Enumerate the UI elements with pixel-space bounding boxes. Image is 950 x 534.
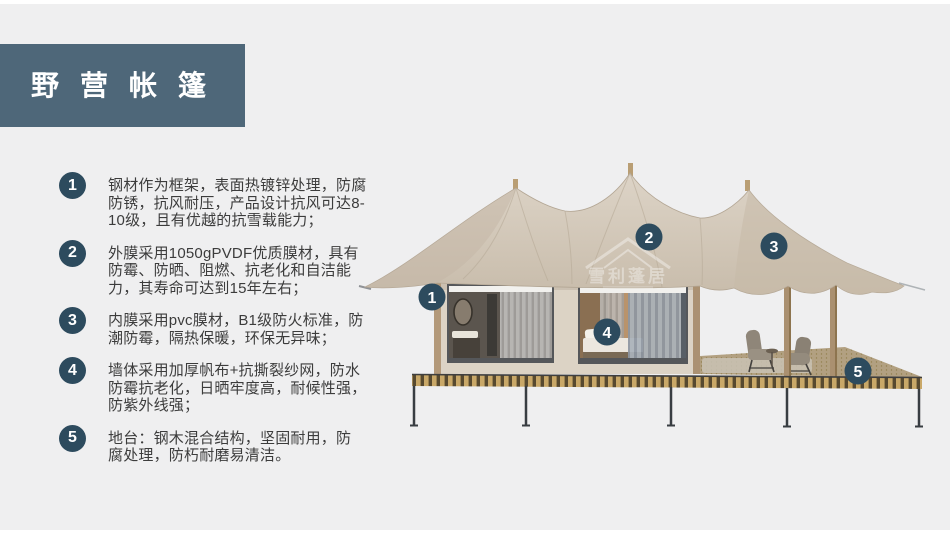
svg-text:1: 1 [428, 290, 437, 307]
deck-platform [410, 374, 923, 427]
svg-text:4: 4 [603, 325, 612, 342]
cabin-module [434, 283, 700, 374]
feature-text: 内膜采用pvc膜材，B1级防火标准，防 潮防霉，隔热保暖，环保无异味； [108, 312, 364, 347]
washbasin [452, 331, 478, 338]
window-valance [449, 286, 552, 292]
shower-column [487, 294, 497, 356]
feature-list: 1 钢材作为框架，表面热镀锌处理，防腐 防锈，抗风耐压，产品设计抗风可达8- 1… [59, 177, 404, 480]
window-bedroom [578, 285, 688, 364]
feature-text: 墙体采用加厚帆布+抗撕裂纱网，防水 防霉抗老化，日晒牢度高，耐候性强， 防紫外线… [108, 362, 366, 415]
feature-text: 外膜采用1050gPVDF优质膜材，具有 防霉、防晒、阻燃、抗老化和自洁能 力，… [108, 245, 359, 298]
curtain [500, 292, 552, 361]
feature-number-badge: 3 [59, 307, 86, 334]
window-bathroom [447, 284, 554, 363]
image-badge-2: 2 [636, 224, 663, 251]
feature-item-1: 1 钢材作为框架，表面热镀锌处理，防腐 防锈，抗风耐压，产品设计抗风可达8- 1… [59, 177, 404, 230]
feature-number-badge: 2 [59, 240, 86, 267]
feature-number-badge: 4 [59, 357, 86, 384]
tent-illustration: 雪利蓬居 1 [355, 158, 950, 434]
mirror [454, 299, 472, 325]
feature-item-3: 3 内膜采用pvc膜材，B1级防火标准，防 潮防霉，隔热保暖，环保无异味； [59, 312, 404, 347]
sheer-curtain [628, 293, 686, 361]
watermark-text: 雪利蓬居 [588, 266, 668, 286]
feature-text: 钢材作为框架，表面热镀锌处理，防腐 防锈，抗风耐压，产品设计抗风可达8- 10级… [108, 177, 366, 230]
feature-item-4: 4 墙体采用加厚帆布+抗撕裂纱网，防水 防霉抗老化，日晒牢度高，耐候性强， 防紫… [59, 362, 404, 415]
image-badge-3: 3 [761, 233, 788, 260]
image-badge-5: 5 [845, 358, 872, 385]
page-title: 野营帐篷 [31, 72, 227, 100]
svg-text:3: 3 [770, 239, 779, 256]
image-badge-1: 1 [419, 284, 446, 311]
feature-number-badge: 1 [59, 172, 86, 199]
bottom-margin-strip [0, 530, 950, 534]
feature-item-2: 2 外膜采用1050gPVDF优质膜材，具有 防霉、防晒、阻燃、抗老化和自洁能 … [59, 245, 404, 298]
feature-item-5: 5 地台：钢木混合结构，坚固耐用，防 腐处理，防朽耐磨易清洁。 [59, 430, 404, 465]
feature-number-badge: 5 [59, 425, 86, 452]
feature-text: 地台：钢木混合结构，坚固耐用，防 腐处理，防朽耐磨易清洁。 [108, 430, 351, 465]
title-block: 野营帐篷 [0, 44, 245, 127]
svg-text:5: 5 [854, 364, 863, 381]
slide: 野营帐篷 1 钢材作为框架，表面热镀锌处理，防腐 防锈，抗风耐压，产品设计抗风可… [0, 0, 950, 534]
svg-text:2: 2 [645, 230, 654, 247]
corner-post-right [693, 283, 700, 374]
image-badge-4: 4 [594, 319, 621, 346]
top-margin-strip [0, 0, 950, 4]
vanity-cabinet [453, 338, 480, 358]
deck-legs [410, 386, 923, 427]
